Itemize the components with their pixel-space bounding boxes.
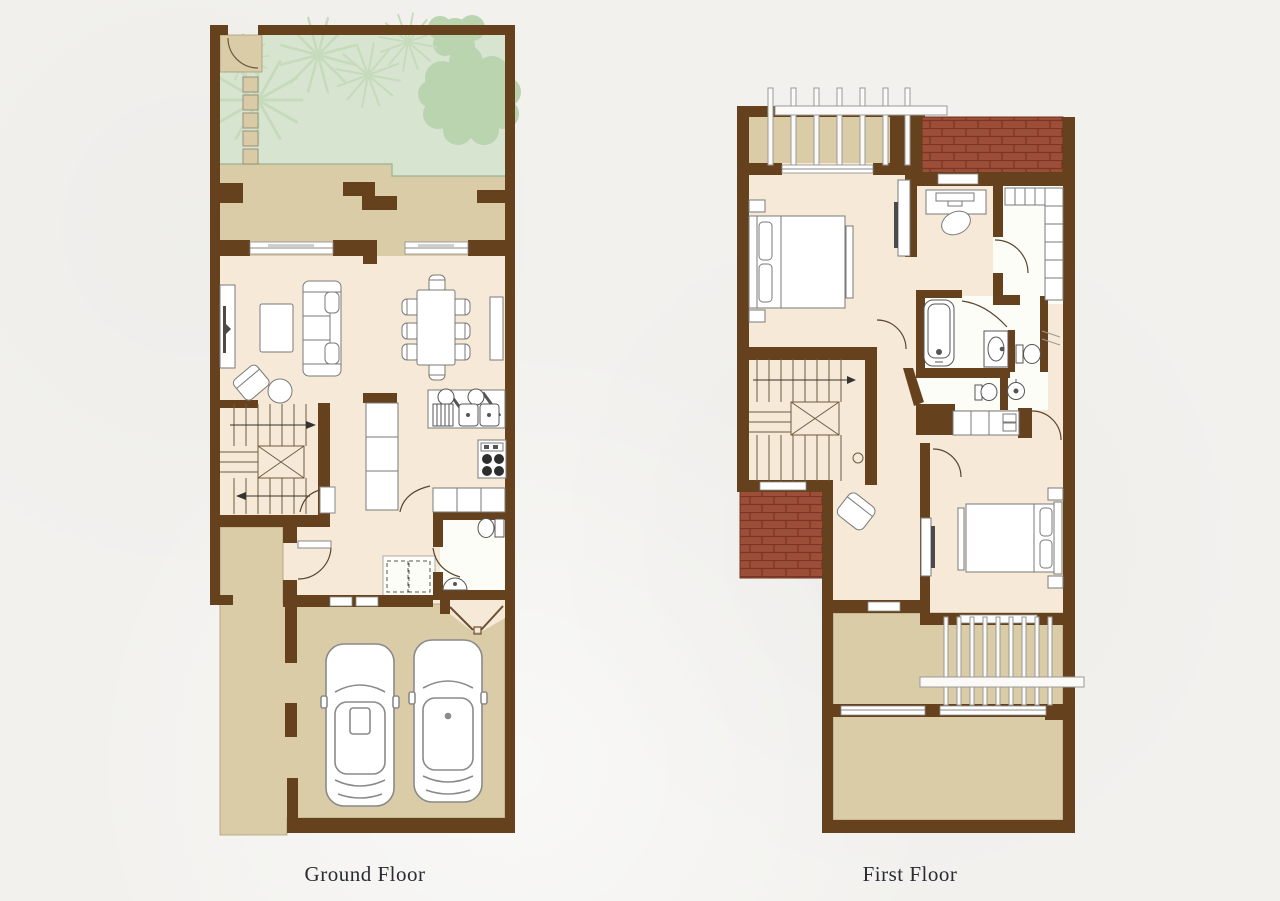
headboard <box>749 216 757 308</box>
stair-void <box>791 402 839 435</box>
kitchen-sink <box>428 389 505 428</box>
first-floor-plan <box>737 88 1084 833</box>
kitchen-peninsula <box>366 403 398 510</box>
pillow <box>1040 508 1052 536</box>
headboard <box>1054 502 1062 574</box>
study-window <box>938 174 978 184</box>
coffee-table <box>260 304 293 352</box>
pillow <box>1040 540 1052 568</box>
floor-plan-canvas: Ground Floor First Floor <box>0 0 1280 901</box>
first-floor-label: First Floor <box>790 862 1030 887</box>
pillow <box>759 264 772 302</box>
pillow <box>759 222 772 260</box>
bed-two <box>958 502 1062 574</box>
nightstand <box>749 200 765 212</box>
toilet <box>1016 345 1041 364</box>
tv-icon <box>894 202 898 248</box>
car-2 <box>409 640 487 802</box>
nightstand <box>1048 488 1063 500</box>
floor-plan-drawing <box>0 0 1280 901</box>
tv-console <box>898 180 910 256</box>
stove <box>478 440 506 478</box>
toilet <box>478 519 504 538</box>
guest-toilet <box>975 384 997 401</box>
hall-window-2 <box>356 597 378 606</box>
entry-gate <box>220 35 262 72</box>
dish-rack-icon <box>433 404 453 426</box>
dining-table <box>417 290 455 365</box>
tv-icon <box>931 526 935 568</box>
side-door-leaf <box>298 541 331 548</box>
kitchen-counter <box>433 488 505 512</box>
tv-icon <box>223 306 226 353</box>
bathtub <box>924 300 954 366</box>
pergola-beam <box>775 106 947 115</box>
nightstand <box>1048 576 1063 588</box>
car-1 <box>321 644 399 806</box>
terrace-window-left <box>250 242 333 254</box>
linen-cabinet <box>953 411 1019 435</box>
stair-window <box>760 482 806 490</box>
bed-master <box>749 216 853 308</box>
side-table <box>268 379 292 403</box>
sideboard <box>490 297 503 360</box>
stepping-stones <box>243 77 258 164</box>
stair-void <box>258 446 304 478</box>
sitting-window <box>868 602 900 611</box>
tiled-roof-lower <box>740 490 825 578</box>
terrace-window-right <box>405 242 468 254</box>
bed-bench <box>846 226 853 298</box>
pergola-beam <box>920 677 1084 687</box>
tv-console <box>921 518 931 576</box>
sofa <box>303 281 341 376</box>
ground-floor-plan <box>210 5 521 835</box>
monitor-icon <box>936 193 974 201</box>
wardrobe-unit <box>1045 188 1063 300</box>
nightstand <box>749 310 765 322</box>
hall-window-1 <box>330 597 352 606</box>
ground-floor-label: Ground Floor <box>245 862 485 887</box>
vanity-basin <box>984 331 1008 367</box>
bed-bench <box>958 508 964 570</box>
under-stair-door-leaf <box>320 487 335 513</box>
tiled-roof-upper <box>922 117 1063 179</box>
